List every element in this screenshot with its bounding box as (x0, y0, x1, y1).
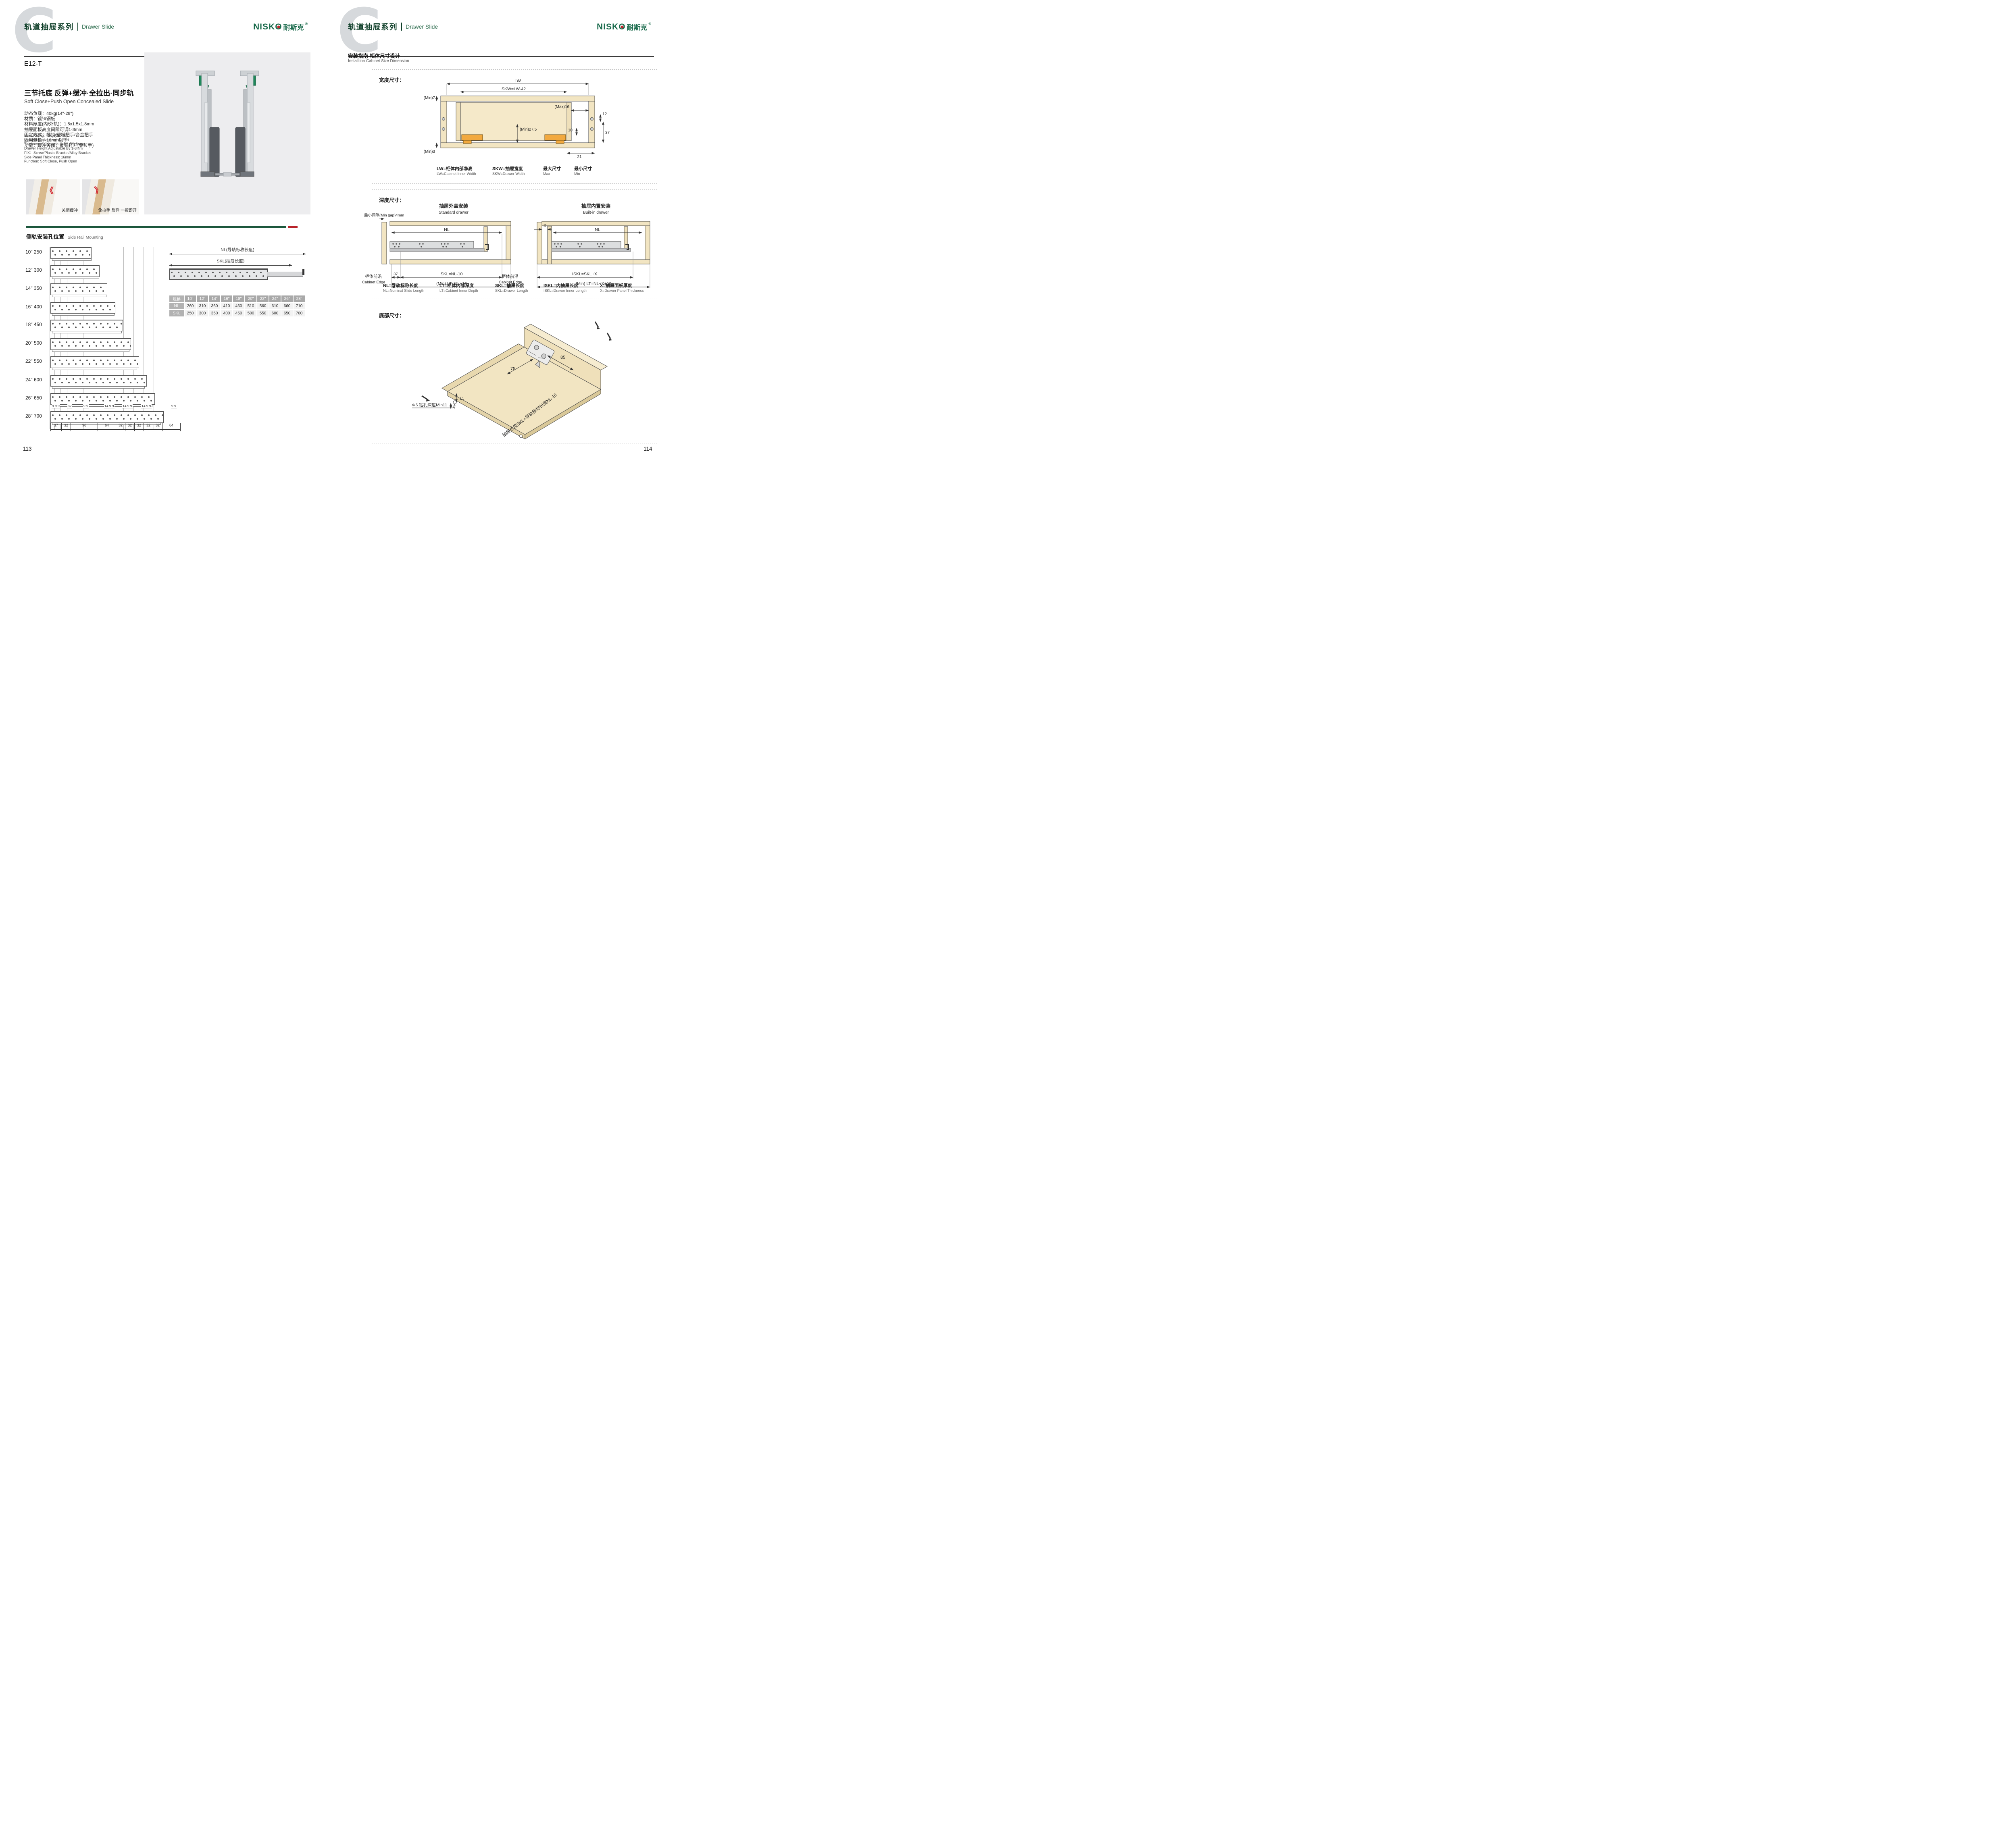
legend-item: SKL=抽屉长度 SKL=Drawer Length (495, 282, 528, 293)
size-table-cell: 400 (221, 310, 232, 316)
size-table-header-cell: 12" (197, 295, 208, 302)
section-rule-red (288, 226, 298, 228)
slide-illustration-hook (302, 269, 304, 275)
rail-bottom-dim: 96 (71, 423, 98, 431)
dim-label-max16: (Max)16 (554, 105, 569, 109)
std-title-cn: 抽屉外盖安装 (439, 203, 468, 209)
construction-line (50, 247, 50, 429)
legend-item: LT=柜体内部深度 LT=Cabinet Inner Depth (439, 282, 478, 293)
rail-bar (50, 283, 107, 295)
builtin-title-en: Built-in drawer (583, 210, 609, 215)
rail-bottom-dim: 32 (153, 423, 162, 431)
builtin-nl-label: NL (595, 227, 600, 232)
rail-row-label: 14" 350 (25, 285, 49, 291)
rail-row-label: 18" 450 (25, 322, 49, 327)
registered-mark: ® (305, 22, 308, 26)
drill-note: Φ6 钻孔深度Min11 (412, 402, 447, 408)
size-table-cell: 710 (294, 303, 305, 309)
size-table-header-cell: 16" (221, 295, 232, 302)
nl-dim-label: NL(导轨标称长度) (169, 247, 306, 253)
rail-bottom-dim: 32 (116, 423, 125, 431)
rail-top-dim: 32 (67, 404, 72, 408)
rail-bottom-dim: 32 (144, 423, 153, 431)
product-title-cn: 三节托底 反弹+缓冲·全拉出·同步轨 (24, 88, 134, 98)
size-table-header-cell: 18" (233, 295, 244, 302)
brand-logo: NISKO 耐斯克 ® (253, 22, 308, 32)
page-number-left: 113 (23, 446, 32, 452)
size-table-cell: 660 (281, 303, 293, 309)
width-box-title: 宽度尺寸： (379, 76, 404, 83)
legend-item: LW=柜体内部净高 LW=Cabinet Inner Width (437, 165, 476, 176)
size-table-row-label: SKL (169, 310, 184, 316)
legend-item: 最大尺寸 Max (543, 165, 561, 176)
spec-line-en: Material: Galvanized Sheed (24, 138, 91, 142)
rail-row-label: 22" 550 (25, 358, 49, 364)
spec-line-cn: 动态负载：40kg(14"-28") (24, 111, 94, 116)
std-nl-label: NL (444, 227, 450, 232)
size-table-header-cell: 20" (245, 295, 256, 302)
size-table-header-cell: 14" (209, 295, 220, 302)
rail-bar (50, 356, 139, 368)
rail-row-label: 26" 650 (25, 395, 49, 401)
feature-photo-soft-close: 《 关闭缓冲 (26, 179, 80, 214)
size-table-header-cell: 10" (185, 295, 196, 302)
rail-bottom-dim: 64 (162, 423, 181, 431)
std-skl-label: SKL=NL-10 (441, 272, 463, 277)
dim-label-lw: LW (514, 79, 521, 83)
product-photo (144, 52, 310, 214)
section-rule-green (26, 226, 286, 228)
size-table: 规格10"12"14"16"18"20"22"24"26"28"NL260310… (169, 295, 306, 317)
rail-bottom-dim: 64 (98, 423, 116, 431)
std-37-label: 37 (394, 272, 398, 277)
size-table-cell: 310 (197, 303, 208, 309)
spec-line-cn: 材质：镀锌钢板 (24, 116, 94, 122)
rail-row-label: 20" 500 (25, 340, 49, 346)
dim-label-min7: (Min)7 (424, 96, 435, 100)
size-table-cell: 410 (221, 303, 232, 309)
size-table-cell: 550 (257, 310, 269, 316)
size-table-cell: 560 (257, 303, 269, 309)
chevron-right-icon: 》 (93, 183, 104, 196)
slide-illustration-extension (267, 272, 303, 277)
dim-label-min3: (Min)3 (424, 150, 435, 154)
std-title-en: Standard drawer (439, 210, 469, 215)
size-table-cell: 300 (197, 310, 208, 316)
spec-line-en: Drawer Height Adjustable By 1-3mm (24, 146, 91, 151)
size-table-cell: 250 (185, 310, 196, 316)
rail-bar (50, 247, 92, 259)
legend-item: X=抽屉面板厚度 X=Drawer Panel Thickness (600, 282, 644, 293)
catalog-spread: C 轨道抽屉系列 Drawer Slide NISKO 耐斯克 ® E12-T … (0, 0, 676, 462)
rail-top-dim: 14 9 9 (141, 404, 152, 408)
size-table-cell: 500 (245, 310, 256, 316)
series-title-en: Drawer Slide (82, 23, 114, 30)
rail-top-dim: 14 9 9 (104, 404, 115, 408)
spec-line-cn: 抽屉面板高度间隙可调1-3mm (24, 127, 94, 133)
product-photo-illustration (144, 52, 310, 214)
dim-label-10: 10 (568, 128, 573, 133)
dim-label-12: 12 (602, 112, 607, 116)
logo-text-cn: 耐斯克 (627, 22, 648, 32)
size-table-cell: 510 (245, 303, 256, 309)
builtin-title-cn: 抽屉内置安装 (581, 203, 610, 209)
size-table-cell: 610 (269, 303, 281, 309)
rail-bar (50, 265, 100, 277)
rail-bar (50, 320, 123, 331)
feature-photo-push-open: 》 免拉手 反弹 一按即开 (82, 179, 139, 214)
rail-top-dim: 9 9 (171, 404, 177, 408)
rail-top-dim: 9 9 (83, 404, 89, 408)
logo-text-en: NISKO (597, 22, 626, 32)
rail-bar (50, 338, 131, 350)
legend-item: SKW=抽屉宽度 SKW=Drawer Width (492, 165, 525, 176)
rail-bottom-dim: 32 (134, 423, 144, 431)
skl-dim-label: SKL(抽屉长度) (169, 258, 292, 264)
rail-bottom-dimensions: 37329664323232323264 (50, 423, 181, 431)
size-table-header-cell: 22" (257, 295, 269, 302)
legend-item: NL=导轨标称长度 NL=Nominal Slide Length (383, 282, 424, 293)
rail-bar (50, 302, 115, 314)
brand-logo: NISKO 耐斯克 ® (597, 22, 651, 32)
std-edge-cn: 柜体前沿 (365, 274, 382, 279)
size-table-header-cell: 26" (281, 295, 293, 302)
construction-line (164, 247, 164, 429)
spec-line-cn: 材料厚度(内/外轨)：1.5x1.5x1.8mm (24, 122, 94, 127)
size-table-cell: 260 (185, 303, 196, 309)
spec-line-en: Thickness Of Materia (1.5/1.5/1.8mm) (24, 142, 91, 146)
size-table-cell: 700 (294, 310, 305, 316)
slide-illustration-rail (169, 268, 268, 280)
chevron-left-icon: 《 (46, 184, 54, 196)
bottom-box-title: 底部尺寸： (379, 311, 404, 319)
page-header-right: 轨道抽屉系列 Drawer Slide (348, 21, 438, 32)
size-table-cell: 650 (281, 310, 293, 316)
size-table-header-cell: 28" (294, 295, 305, 302)
builtin-edge-cn: 柜体前沿 (502, 274, 519, 279)
size-table-cell: 460 (233, 303, 244, 309)
logo-text-cn: 耐斯克 (283, 22, 304, 32)
page-number-right: 114 (644, 446, 652, 452)
product-title-en: Soft Close+Push Open Concealed Slide (24, 99, 114, 104)
registered-mark: ® (649, 22, 652, 26)
rail-bar (50, 375, 147, 387)
width-cross-section-diagram: LW SKW=LW-42 (Min)7 (Max)16 12 (425, 79, 604, 160)
section-title-side-rail: 侧轨安装孔位置 Side Rail Mounting (26, 232, 103, 240)
spec-list-en: Load Rating: 40kg (14"-28)Material: Galv… (24, 133, 91, 164)
size-table-cell: 600 (269, 310, 281, 316)
bottom-iso-diagram: 75 85 11 7 Φ6 钻孔深度Min11 抽屉长度SKL=导轨标称长度NL… (419, 317, 621, 444)
size-table-header-cell: 规格 (169, 295, 184, 302)
series-title-en: Drawer Slide (406, 23, 438, 30)
dim-label-21: 21 (577, 155, 582, 159)
logo-text-en: NISKO (253, 22, 282, 32)
size-table-cell: 350 (209, 310, 220, 316)
size-table-row-label: NL (169, 303, 184, 309)
install-guide-title-en: Installtion Cabinet Size Dimension (348, 59, 409, 63)
dim-label-11: 11 (460, 396, 464, 401)
dim-label-skw: SKW=LW-42 (502, 87, 526, 92)
builtin-x-label: X (544, 223, 546, 228)
rail-top-dim: 9 9 9 (52, 404, 60, 408)
dim-label-85: 85 (560, 355, 565, 360)
min-gap-label: 最小间隙(Min gap)4mm (364, 213, 404, 218)
skl-dim-arrow (169, 265, 292, 266)
rail-row-label: 28" 700 (25, 413, 49, 419)
builtin-iskl-label: ISKL=SKL+X (572, 272, 597, 277)
photo-caption: 关闭缓冲 (62, 207, 78, 213)
dim-label-75: 75 (510, 366, 515, 371)
rail-bar (50, 393, 155, 405)
spec-line-en: Side Panel Thickness: 16mm (24, 155, 91, 160)
rail-top-dim: 14 9 9 (122, 404, 133, 408)
rail-bottom-dim: 37 (50, 423, 61, 431)
series-title-cn: 轨道抽屉系列 (24, 21, 74, 32)
logo-red-dot (621, 26, 623, 29)
dim-label-37: 37 (605, 131, 610, 135)
header-divider (77, 23, 78, 31)
rail-row-label: 12" 300 (25, 267, 49, 273)
rail-row-label: 24" 600 (25, 377, 49, 383)
spec-line-en: Function: Soft Close, Push Open (24, 159, 91, 164)
spec-line-en: Load Rating: 40kg (14"-28) (24, 133, 91, 138)
spec-line-en: FIX：Screw/Plastic Bracket/Alloy Bracket (24, 151, 91, 155)
size-table-cell: 450 (233, 310, 244, 316)
nl-dim-arrow (169, 254, 306, 254)
std-edge-en: Cabinet Edge (362, 280, 385, 285)
rail-row-label: 10" 250 (25, 249, 49, 255)
series-title-cn: 轨道抽屉系列 (348, 21, 398, 32)
photo-caption: 免拉手 反弹 一按即开 (98, 207, 137, 213)
size-table-header-cell: 24" (269, 295, 281, 302)
logo-red-dot (277, 26, 280, 29)
page-header-left: 轨道抽屉系列 Drawer Slide (24, 21, 114, 32)
section-title-cn: 侧轨安装孔位置 (26, 232, 65, 240)
size-table-cell: 360 (209, 303, 220, 309)
rail-bottom-dim: 32 (61, 423, 71, 431)
rail-bar (50, 411, 164, 423)
model-number: E12-T (24, 60, 42, 68)
section-title-en: Side Rail Mounting (68, 235, 103, 240)
legend-item: 最小尺寸 Min (574, 165, 592, 176)
legend-item: ISKL=内抽屉长度 ISKL=Drawer Inner Length (544, 282, 587, 293)
dim-label-min275: (Min)27.5 (520, 127, 537, 132)
header-divider (401, 23, 402, 31)
install-guide-title-cn: 安装指南-柜体尺寸设计 (348, 52, 400, 59)
rail-row-label: 16" 400 (25, 304, 49, 310)
rail-bottom-dim: 32 (125, 423, 134, 431)
